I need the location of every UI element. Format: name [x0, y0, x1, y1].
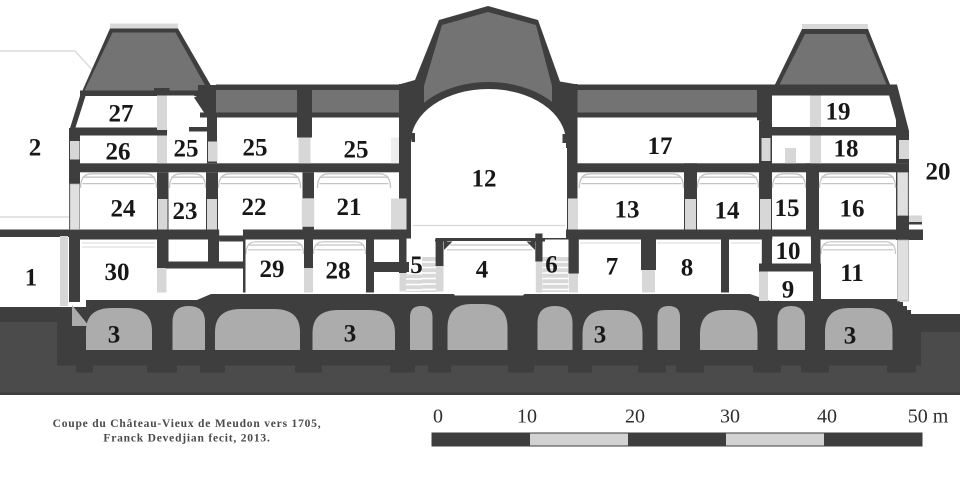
svg-text:25: 25 — [344, 137, 369, 164]
svg-text:23: 23 — [173, 198, 198, 225]
svg-text:17: 17 — [648, 133, 673, 160]
svg-text:20: 20 — [625, 406, 645, 428]
svg-text:Franck Devedjian fecit, 2013.: Franck Devedjian fecit, 2013. — [103, 433, 270, 445]
svg-text:Coupe du Château-Vieux de Meud: Coupe du Château-Vieux de Meudon vers 17… — [53, 418, 322, 430]
svg-text:3: 3 — [108, 322, 121, 349]
svg-text:8: 8 — [681, 255, 694, 282]
svg-text:25: 25 — [243, 135, 268, 162]
svg-text:40: 40 — [817, 406, 837, 428]
svg-text:50 m: 50 m — [908, 406, 949, 428]
svg-text:10: 10 — [517, 406, 537, 428]
svg-text:21: 21 — [337, 194, 362, 221]
svg-text:29: 29 — [260, 256, 285, 283]
svg-text:6: 6 — [545, 252, 558, 279]
svg-text:9: 9 — [782, 277, 795, 304]
svg-text:25: 25 — [174, 136, 199, 163]
svg-text:3: 3 — [594, 322, 607, 349]
svg-text:13: 13 — [615, 197, 640, 224]
svg-text:22: 22 — [242, 194, 267, 221]
svg-text:15: 15 — [775, 195, 800, 222]
svg-text:16: 16 — [840, 196, 865, 223]
svg-text:26: 26 — [106, 139, 131, 166]
svg-text:19: 19 — [826, 99, 851, 126]
svg-text:10: 10 — [776, 238, 801, 265]
svg-text:5: 5 — [410, 252, 423, 279]
svg-text:3: 3 — [344, 321, 357, 348]
svg-text:7: 7 — [606, 254, 619, 281]
svg-text:12: 12 — [472, 166, 497, 193]
svg-text:4: 4 — [476, 257, 489, 284]
svg-text:3: 3 — [844, 323, 857, 350]
svg-text:30: 30 — [105, 259, 130, 286]
svg-text:2: 2 — [29, 135, 42, 162]
svg-text:1: 1 — [25, 265, 38, 292]
svg-text:11: 11 — [840, 260, 864, 287]
svg-text:30: 30 — [720, 406, 740, 428]
svg-text:24: 24 — [111, 196, 137, 223]
svg-text:27: 27 — [109, 101, 134, 128]
svg-text:0: 0 — [433, 406, 443, 428]
svg-text:28: 28 — [326, 258, 351, 285]
svg-text:14: 14 — [715, 198, 741, 225]
svg-text:18: 18 — [834, 136, 859, 163]
svg-text:20: 20 — [926, 159, 951, 186]
